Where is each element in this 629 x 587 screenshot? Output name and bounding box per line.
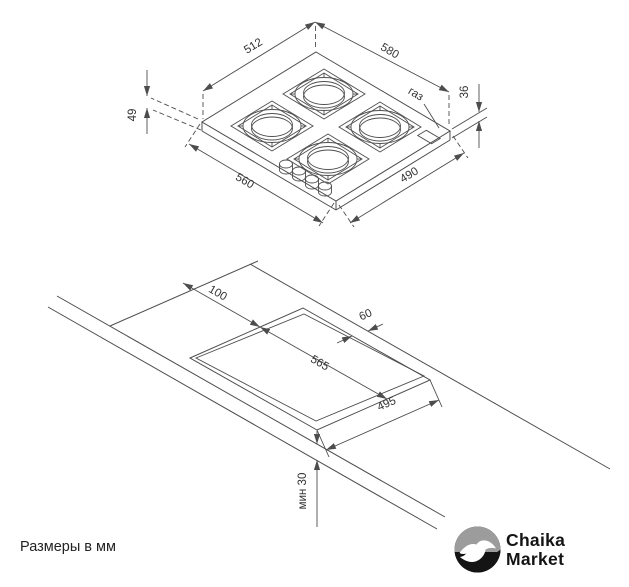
dim-580-label: 580	[378, 41, 401, 61]
dim-490-label: 490	[398, 165, 421, 185]
dim-565-label: 565	[308, 353, 331, 373]
dimension-36: 36	[452, 84, 487, 148]
countertop-cutout-view: 100 565 60 495 мин 30	[48, 261, 610, 529]
hob-isometric-view: 512 580 газ 560 490	[127, 22, 487, 227]
dimension-100: 100	[183, 283, 260, 327]
dimension-495: 495	[317, 380, 442, 457]
dimension-512: 512	[203, 22, 316, 119]
dimension-49: 49	[127, 70, 201, 134]
gas-leader-line	[424, 104, 439, 128]
dim-512-label: 512	[242, 36, 265, 56]
burner-back	[283, 69, 365, 119]
burner-left	[231, 101, 313, 151]
dimension-min-30: мин 30	[297, 431, 317, 527]
gas-label: газ	[406, 85, 425, 103]
dimension-60: 60	[337, 307, 383, 343]
gas-inlet	[418, 130, 441, 143]
dim-560-label: 560	[233, 171, 256, 191]
countertop-outline	[48, 261, 610, 529]
control-knob	[319, 182, 332, 196]
logo: Chaika Market	[453, 525, 565, 574]
dim-min-30-label: мин 30	[297, 473, 309, 510]
control-knobs	[280, 160, 332, 196]
dim-36-label: 36	[459, 86, 471, 99]
units-note: Размеры в мм	[20, 539, 116, 555]
logo-text-line2: Market	[506, 549, 564, 569]
burner-right	[339, 102, 421, 152]
dimension-490: 490	[339, 136, 468, 227]
dim-49-label: 49	[127, 109, 139, 122]
dim-60-label: 60	[357, 307, 374, 323]
logo-text-line1: Chaika	[506, 530, 565, 550]
installation-drawing: 512 580 газ 560 490	[0, 0, 629, 587]
dim-100-label: 100	[206, 283, 229, 303]
seagull-icon	[453, 525, 502, 574]
dim-495-label: 495	[376, 395, 398, 414]
dimension-565: 565	[260, 327, 387, 399]
burner-front	[287, 134, 369, 184]
cutout-opening	[190, 308, 430, 430]
